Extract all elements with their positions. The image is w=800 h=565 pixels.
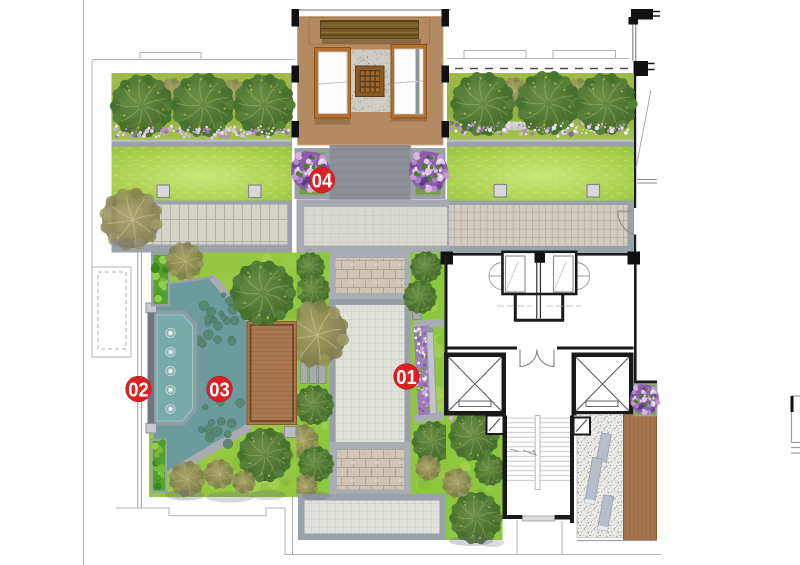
svg-text:01: 01: [396, 366, 417, 389]
svg-text:04: 04: [312, 169, 333, 192]
svg-text:02: 02: [128, 378, 149, 401]
svg-text:03: 03: [209, 378, 230, 401]
